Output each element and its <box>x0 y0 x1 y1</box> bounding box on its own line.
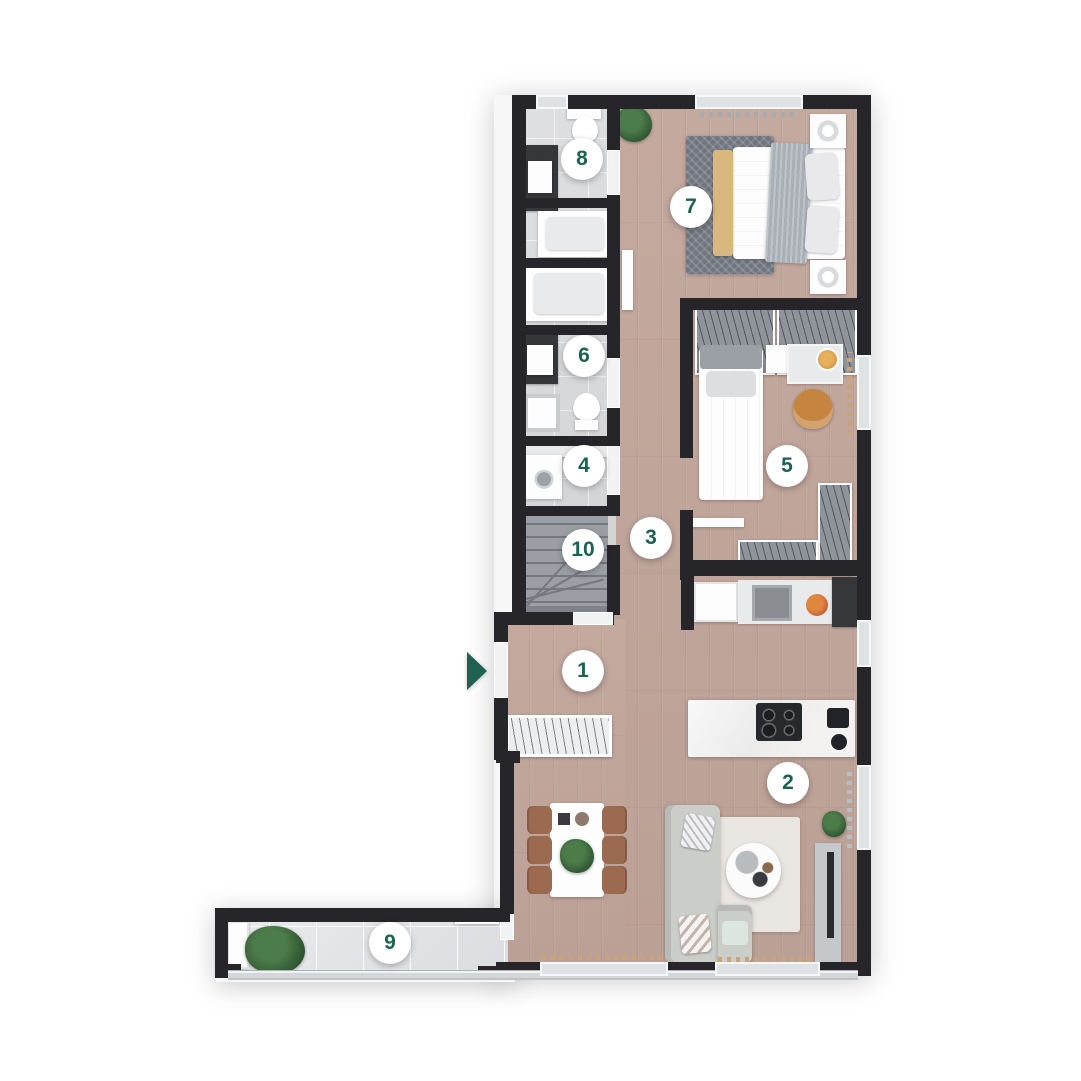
room-marker-6[interactable]: 6 <box>563 335 605 377</box>
marker-layer: 12345678910 <box>0 0 1081 1081</box>
room-marker-2[interactable]: 2 <box>767 762 809 804</box>
room-marker-5[interactable]: 5 <box>766 445 808 487</box>
plant-icon <box>560 839 594 873</box>
room-marker-9[interactable]: 9 <box>369 922 411 964</box>
room-marker-1[interactable]: 1 <box>562 650 604 692</box>
room-marker-8[interactable]: 8 <box>561 138 603 180</box>
floorplan-canvas: 12345678910 <box>0 0 1081 1081</box>
room-marker-7[interactable]: 7 <box>670 186 712 228</box>
room-marker-10[interactable]: 10 <box>562 529 604 571</box>
room-marker-3[interactable]: 3 <box>630 517 672 559</box>
entrance-arrow-icon <box>467 652 487 690</box>
room-marker-4[interactable]: 4 <box>563 445 605 487</box>
